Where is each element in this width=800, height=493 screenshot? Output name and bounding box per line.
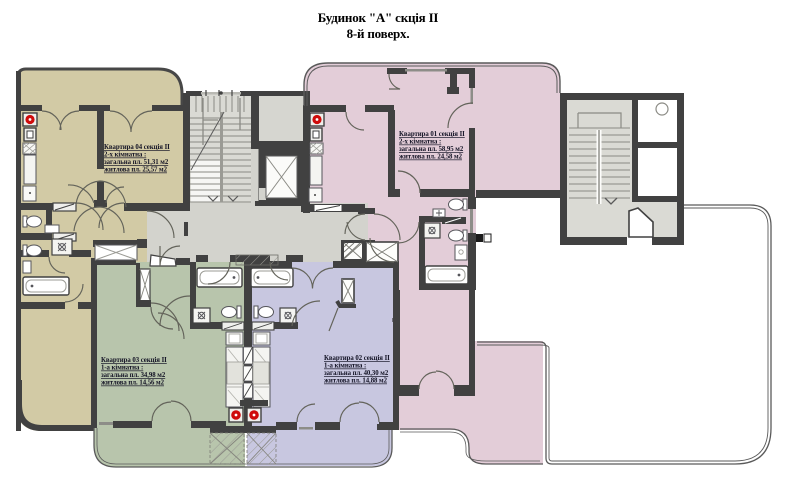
svg-text:житлова пл. 25,57 м2: житлова пл. 25,57 м2 [104, 167, 168, 174]
svg-text:житлова пл. 14,56 м2: житлова пл. 14,56 м2 [101, 380, 165, 387]
svg-text:2-х кімнатна :: 2-х кімнатна : [399, 139, 441, 146]
svg-text:загальна пл. 58,95 м2: загальна пл. 58,95 м2 [399, 146, 464, 153]
svg-text:загальна пл. 51,31 м2: загальна пл. 51,31 м2 [104, 159, 169, 166]
svg-text:1-а кімнатна :: 1-а кімнатна : [101, 365, 143, 372]
svg-text:житлова пл. 24,58 м2: житлова пл. 24,58 м2 [399, 154, 463, 161]
svg-text:Квартира 01 секція ІІ: Квартира 01 секція ІІ [399, 131, 465, 138]
svg-text:житлова пл. 14,88 м2: житлова пл. 14,88 м2 [324, 378, 388, 385]
svg-text:1-а кімнатна :: 1-а кімнатна : [324, 363, 366, 370]
svg-text:8-й поверх.: 8-й поверх. [347, 26, 410, 41]
svg-text:2-х кімнатна :: 2-х кімнатна : [104, 152, 146, 159]
svg-text:Квартира 02 секція ІІ: Квартира 02 секція ІІ [324, 355, 390, 362]
svg-text:Будинок "А" скція ІІ: Будинок "А" скція ІІ [318, 10, 439, 25]
svg-text:загальна пл. 34,98 м2: загальна пл. 34,98 м2 [101, 372, 166, 379]
svg-text:загальна пл. 40,30 м2: загальна пл. 40,30 м2 [324, 370, 389, 377]
svg-text:Квартира 04 секція ІІ: Квартира 04 секція ІІ [104, 144, 170, 151]
svg-text:Квартира 03 секція ІІ: Квартира 03 секція ІІ [101, 357, 167, 364]
